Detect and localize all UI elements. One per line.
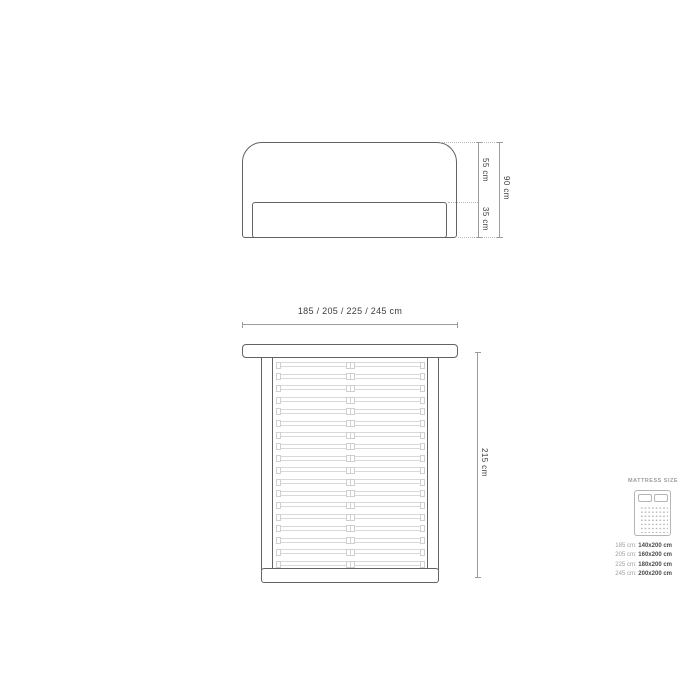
bed-slat (276, 502, 424, 507)
slat-center-joint (346, 455, 355, 462)
legend-row-value: 160x200 cm (638, 552, 672, 558)
legend-row-label: 185 cm: (615, 543, 636, 549)
bed-slat (276, 561, 424, 566)
headboard-plan-bar (242, 344, 458, 358)
slat-center-joint (346, 561, 355, 568)
bed-slat (276, 549, 424, 554)
bed-slat (276, 432, 424, 437)
bed-slat (276, 385, 424, 390)
slat-center-joint (346, 490, 355, 497)
bed-slat (276, 397, 424, 402)
slat-center-joint (346, 385, 355, 392)
slat-center-joint (346, 549, 355, 556)
dim-label-35cm: 35 cm (481, 207, 490, 231)
bed-slat (276, 491, 424, 496)
slat-center-joint (346, 420, 355, 427)
bed-slat (276, 409, 424, 414)
bed-slat (276, 538, 424, 543)
legend-row-label: 245 cm: (615, 571, 636, 577)
slat-center-joint (346, 443, 355, 450)
footboard-plan-bar (261, 568, 439, 583)
dim-label-width-options: 185 / 205 / 225 / 245 cm (250, 306, 450, 316)
bed-slat (276, 374, 424, 379)
legend-row-label: 225 cm: (615, 562, 636, 568)
slat-center-joint (346, 514, 355, 521)
dimension-line-width (242, 324, 458, 325)
slat-center-joint (346, 408, 355, 415)
bedframe-front-rect (252, 202, 447, 238)
bed-slat (276, 514, 424, 519)
slat-center-joint (346, 502, 355, 509)
mattress-icon (634, 490, 671, 536)
legend-row-245: 245 cm: 200x200 cm (588, 570, 672, 579)
dimension-line-55-35 (478, 142, 479, 238)
slat-center-joint (346, 373, 355, 380)
legend-row-225: 225 cm: 180x200 cm (588, 561, 672, 570)
legend-row-label: 205 cm: (615, 552, 636, 558)
slat-center-joint (346, 525, 355, 532)
legend-row-value: 140x200 cm (638, 543, 672, 549)
mattress-tufting-dots (639, 505, 668, 533)
legend-row-value: 200x200 cm (638, 571, 672, 577)
bed-slat (276, 456, 424, 461)
extension-line-mid (448, 202, 478, 203)
slat-area (275, 362, 425, 566)
bed-side-rail-right (427, 356, 439, 570)
slat-center-joint (346, 467, 355, 474)
pillow-icon-left (638, 494, 652, 502)
dimension-line-90 (499, 142, 500, 238)
dim-label-90cm: 90 cm (502, 176, 511, 200)
bed-slat (276, 526, 424, 531)
legend-row-205: 205 cm: 160x200 cm (588, 551, 672, 560)
bed-slat (276, 467, 424, 472)
bed-slat (276, 444, 424, 449)
bed-dimension-diagram: 55 cm 35 cm 90 cm 185 / 205 / 225 / 245 … (0, 0, 700, 700)
bed-slat (276, 421, 424, 426)
bed-slat (276, 479, 424, 484)
dim-label-215cm: 215 cm (480, 448, 489, 477)
legend-row-value: 180x200 cm (638, 562, 672, 568)
bed-side-rail-left (261, 356, 273, 570)
slat-center-joint (346, 432, 355, 439)
bed-slat (276, 362, 424, 367)
slat-center-joint (346, 479, 355, 486)
dimension-line-length (477, 352, 478, 578)
extension-line-top (440, 142, 499, 143)
pillow-icon-right (654, 494, 668, 502)
legend-title: MATTRESS SIZE (613, 478, 693, 484)
legend-row-185: 185 cm: 140x200 cm (588, 542, 672, 551)
slat-center-joint (346, 397, 355, 404)
slat-center-joint (346, 362, 355, 369)
slat-center-joint (346, 537, 355, 544)
dim-label-55cm: 55 cm (481, 158, 490, 182)
